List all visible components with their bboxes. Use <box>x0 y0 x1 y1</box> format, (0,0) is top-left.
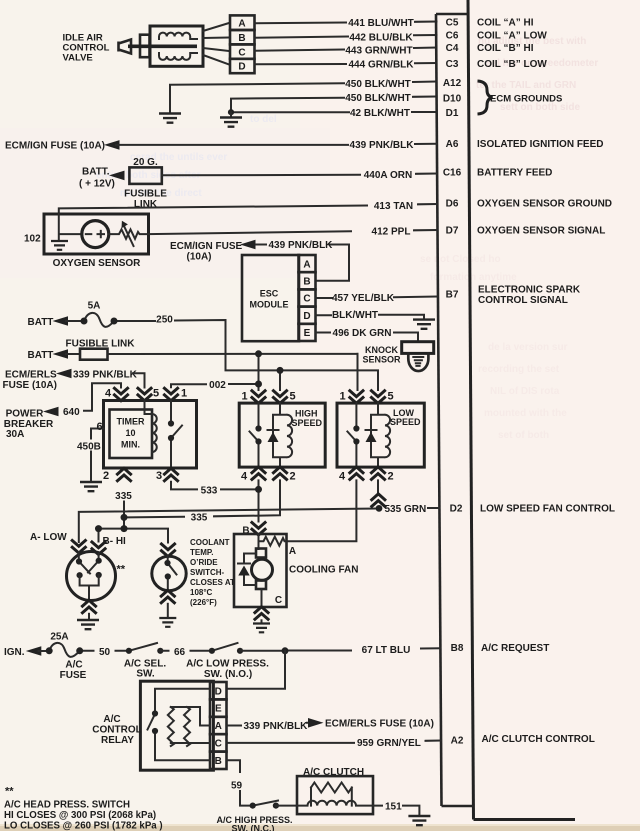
svg-text:( + 12V): ( + 12V) <box>79 179 115 190</box>
svg-text:OXYGEN SENSOR: OXYGEN SENSOR <box>53 258 142 269</box>
svg-text:ECM/ERLS FUSE (10A): ECM/ERLS FUSE (10A) <box>325 718 434 729</box>
svg-text:440A ORN: 440A ORN <box>364 170 413 181</box>
svg-text:BLK/WHT: BLK/WHT <box>332 310 378 321</box>
svg-text:E: E <box>304 328 311 339</box>
svg-text:5: 5 <box>388 391 394 403</box>
svg-text:C: C <box>238 47 245 58</box>
svg-text:B: B <box>238 33 245 44</box>
svg-text:4: 4 <box>105 388 112 400</box>
svg-text:442 BLU/BLK: 442 BLU/BLK <box>349 33 413 44</box>
svg-text:ECM/IGN FUSE (10A): ECM/IGN FUSE (10A) <box>5 141 105 152</box>
svg-text:1: 1 <box>340 391 346 403</box>
svg-text:441 BLU/WHT: 441 BLU/WHT <box>348 18 414 29</box>
svg-text:151: 151 <box>385 802 402 813</box>
svg-text:339 PNK/BLK: 339 PNK/BLK <box>244 721 309 732</box>
svg-text:B: B <box>215 756 222 767</box>
svg-text:50: 50 <box>99 647 111 658</box>
svg-text:A2: A2 <box>451 735 464 746</box>
svg-text:67 LT BLU: 67 LT BLU <box>362 645 411 656</box>
svg-text:2: 2 <box>103 470 109 482</box>
svg-text:C16: C16 <box>443 168 462 179</box>
svg-text:640: 640 <box>63 407 80 418</box>
svg-text:to del: to del <box>250 114 277 125</box>
svg-text:D: D <box>215 686 222 697</box>
svg-text:A6: A6 <box>446 139 459 150</box>
svg-text:MODULE: MODULE <box>250 299 289 309</box>
svg-text:533: 533 <box>201 486 218 497</box>
svg-text:IGN.: IGN. <box>4 647 25 658</box>
svg-text:335: 335 <box>115 491 132 502</box>
svg-text:A/C LOW PRESS.: A/C LOW PRESS. <box>186 658 269 669</box>
svg-text:A/C REQUEST: A/C REQUEST <box>481 643 549 654</box>
svg-text:COOLANT: COOLANT <box>190 538 230 547</box>
svg-text:RELAY: RELAY <box>101 735 134 746</box>
svg-text:C5: C5 <box>446 18 459 29</box>
svg-text:42 BLK/WHT: 42 BLK/WHT <box>350 108 410 119</box>
svg-text:COOLING FAN: COOLING FAN <box>289 564 358 575</box>
svg-text:B: B <box>303 277 310 288</box>
svg-text:1: 1 <box>181 388 187 400</box>
svg-text:C: C <box>215 739 222 750</box>
svg-text:SWITCH-: SWITCH- <box>190 568 225 577</box>
svg-text:30A: 30A <box>6 429 24 440</box>
svg-text:de la version sur: de la version sur <box>488 342 568 353</box>
svg-text:**: ** <box>117 564 126 576</box>
svg-text:LO CLOSES @ 260 PSI (1782 kPa: LO CLOSES @ 260 PSI (1782 kPa ) <box>4 821 163 831</box>
svg-text:COIL “A” HI: COIL “A” HI <box>477 18 534 29</box>
svg-text:BATTERY FEED: BATTERY FEED <box>477 168 552 179</box>
svg-text:10: 10 <box>125 428 135 438</box>
svg-text:set of both: set of both <box>498 430 549 441</box>
svg-text:NIL of DIS rota: NIL of DIS rota <box>490 386 560 397</box>
svg-text:FUSIBLE: FUSIBLE <box>124 188 167 199</box>
svg-text:6: 6 <box>97 421 103 433</box>
svg-text:C: C <box>303 294 310 305</box>
svg-text:FUSE: FUSE <box>60 670 87 681</box>
svg-text:108°C: 108°C <box>190 588 213 597</box>
svg-text:439 PNK/BLK: 439 PNK/BLK <box>350 140 415 151</box>
svg-text:O’RIDE: O’RIDE <box>190 558 218 567</box>
svg-text:VALVE: VALVE <box>63 53 93 64</box>
svg-text:002: 002 <box>209 380 226 391</box>
svg-text:LOW SPEED FAN CONTROL: LOW SPEED FAN CONTROL <box>480 504 615 515</box>
svg-text:D7: D7 <box>446 226 459 237</box>
svg-text:COIL “B” LOW: COIL “B” LOW <box>477 59 547 70</box>
svg-text:BATT.: BATT. <box>82 167 110 178</box>
svg-text:335: 335 <box>191 512 208 523</box>
svg-text:B8: B8 <box>451 643 464 654</box>
svg-text:535 GRN: 535 GRN <box>385 504 427 515</box>
svg-text:D10: D10 <box>443 93 462 104</box>
svg-text:SW. (N.O.): SW. (N.O.) <box>204 669 252 680</box>
svg-text:COIL “A” LOW: COIL “A” LOW <box>477 31 547 42</box>
svg-text:A: A <box>238 19 245 30</box>
svg-text:250: 250 <box>156 315 173 326</box>
svg-text:OXYGEN SENSOR GROUND: OXYGEN SENSOR GROUND <box>477 199 612 210</box>
svg-text:(10A): (10A) <box>187 251 212 262</box>
svg-text:CONTROL: CONTROL <box>92 725 141 736</box>
svg-text:OXYGEN SENSOR SIGNAL: OXYGEN SENSOR SIGNAL <box>477 226 605 237</box>
svg-text:457 YEL/BLK: 457 YEL/BLK <box>332 293 395 304</box>
svg-text:444 GRN/BLK: 444 GRN/BLK <box>348 60 414 71</box>
svg-text:66: 66 <box>174 647 186 658</box>
svg-text:ISOLATED IGNITION FEED: ISOLATED IGNITION FEED <box>477 139 603 150</box>
svg-text:3: 3 <box>156 470 162 482</box>
svg-text:2: 2 <box>388 471 394 483</box>
svg-text:2: 2 <box>290 471 296 483</box>
svg-text:443 GRN/WHT: 443 GRN/WHT <box>345 46 412 57</box>
svg-text:C3: C3 <box>446 59 459 70</box>
svg-text:SENSOR: SENSOR <box>362 355 401 365</box>
svg-text:25A: 25A <box>50 632 68 643</box>
svg-text:A/C: A/C <box>103 714 120 725</box>
svg-text:339 PNK/BLK: 339 PNK/BLK <box>73 369 138 380</box>
svg-text:SW.: SW. <box>136 668 155 679</box>
svg-text:5A: 5A <box>88 301 101 312</box>
svg-text:A/C HEAD PRESS. SWITCH: A/C HEAD PRESS. SWITCH <box>4 800 130 811</box>
svg-text:D: D <box>303 311 310 322</box>
svg-text:496 DK GRN: 496 DK GRN <box>333 328 392 339</box>
svg-text:D2: D2 <box>450 504 463 515</box>
svg-text:A: A <box>289 546 296 557</box>
svg-text:412 PPL: 412 PPL <box>372 226 411 237</box>
svg-text:1: 1 <box>242 391 248 403</box>
svg-text:A- LOW: A- LOW <box>30 532 67 543</box>
svg-text:A/C CLUTCH CONTROL: A/C CLUTCH CONTROL <box>482 734 595 745</box>
svg-text:D1: D1 <box>446 108 459 119</box>
svg-text:COIL “B” HI: COIL “B” HI <box>477 43 534 54</box>
svg-text:102: 102 <box>24 234 41 245</box>
svg-text:MIN.: MIN. <box>121 439 140 449</box>
svg-text:ELECTRONIC SPARK: ELECTRONIC SPARK <box>478 285 581 296</box>
svg-text:E: E <box>215 704 222 715</box>
svg-text:HI CLOSES @ 300 PSI (2068 kPa): HI CLOSES @ 300 PSI (2068 kPa) <box>4 810 156 821</box>
svg-text:A: A <box>303 259 310 270</box>
svg-text:D: D <box>238 62 245 73</box>
svg-text:TEMP.: TEMP. <box>190 548 213 557</box>
svg-text:mounted with the: mounted with the <box>484 408 567 419</box>
svg-text:SPEED: SPEED <box>390 417 421 427</box>
svg-text:450 BLK/WHT: 450 BLK/WHT <box>345 79 411 90</box>
svg-text:C: C <box>275 595 282 606</box>
svg-text:450 BLK/WHT: 450 BLK/WHT <box>345 93 411 104</box>
svg-text:450B: 450B <box>77 442 101 453</box>
svg-text:B7: B7 <box>446 290 459 301</box>
svg-text:SW. (N.C.): SW. (N.C.) <box>232 824 275 831</box>
svg-text:BATT: BATT <box>28 350 54 361</box>
svg-text:ESC: ESC <box>260 289 279 299</box>
svg-text:4: 4 <box>241 471 248 483</box>
svg-text:C6: C6 <box>446 31 459 42</box>
svg-text:A12: A12 <box>443 78 462 89</box>
svg-text:ECM GROUNDS: ECM GROUNDS <box>490 93 562 104</box>
svg-text:413 TAN: 413 TAN <box>374 201 413 212</box>
svg-text:CLOSES AT: CLOSES AT <box>190 578 235 587</box>
svg-text:959 GRN/YEL: 959 GRN/YEL <box>357 738 421 749</box>
svg-text:439 PNK/BLK: 439 PNK/BLK <box>269 240 334 251</box>
svg-text:FUSE (10A): FUSE (10A) <box>3 380 57 391</box>
svg-text:SPEED: SPEED <box>292 418 323 428</box>
svg-text:A: A <box>215 721 222 732</box>
svg-text:recording the set: recording the set <box>478 364 560 375</box>
svg-text:5: 5 <box>290 391 296 403</box>
svg-text:D6: D6 <box>446 199 459 210</box>
svg-text:4: 4 <box>339 471 346 483</box>
svg-text:TIMER: TIMER <box>117 417 145 427</box>
svg-text:5: 5 <box>153 388 159 400</box>
svg-text:(226°F): (226°F) <box>190 598 217 607</box>
svg-text:**: ** <box>5 786 14 798</box>
svg-text:C4: C4 <box>446 43 459 54</box>
svg-text:CONTROL SIGNAL: CONTROL SIGNAL <box>478 295 568 306</box>
svg-text:ter the TAIL and GRN: ter the TAIL and GRN <box>476 80 576 91</box>
svg-text:formation anytime: formation anytime <box>430 272 517 283</box>
svg-text:BATT: BATT <box>28 317 54 328</box>
svg-text:se not Closed ho: se not Closed ho <box>420 254 501 265</box>
svg-text:59: 59 <box>231 780 243 791</box>
